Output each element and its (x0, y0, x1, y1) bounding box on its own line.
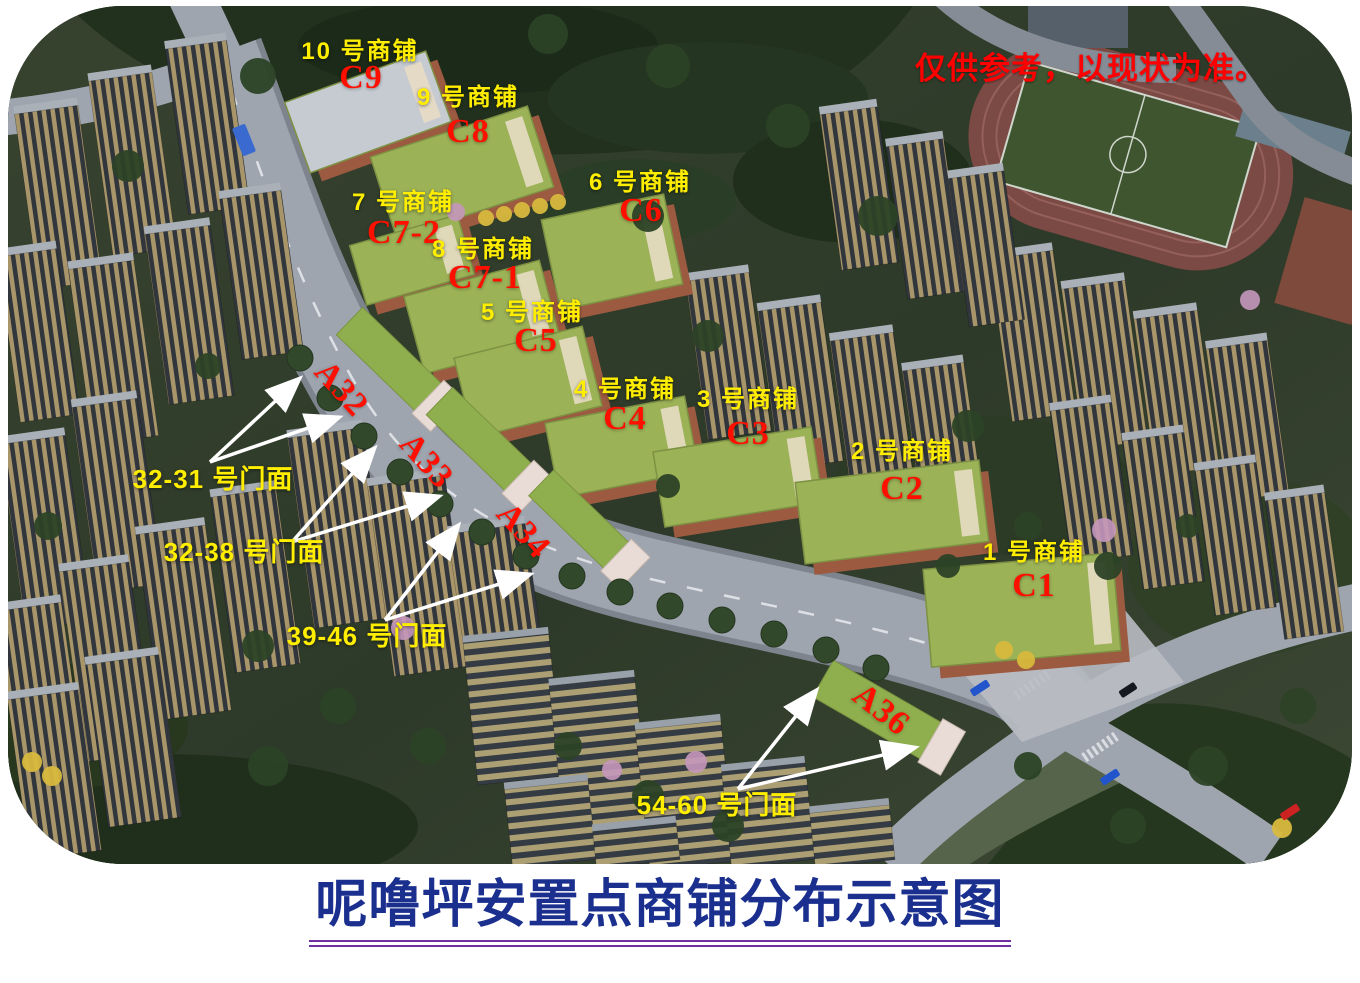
storefront-range-label: 32-31 号门面 (133, 466, 294, 492)
block-code-label: A32 (308, 355, 374, 424)
block-code-label: A33 (393, 427, 459, 496)
shop-name-label: 2 号商铺 (851, 440, 953, 464)
annotation-labels: 10 号商铺C99 号商铺C87 号商铺C7-28 号商铺C7-16 号商铺C6… (8, 6, 1352, 864)
shop-code-label: C9 (339, 61, 383, 95)
poster-page: 10 号商铺C99 号商铺C87 号商铺C7-28 号商铺C7-16 号商铺C6… (0, 0, 1360, 983)
shop-name-label: 3 号商铺 (697, 388, 799, 412)
storefront-range-label: 54-60 号门面 (637, 792, 798, 818)
shop-name-label: 7 号商铺 (352, 191, 454, 215)
shop-code-label: C7-2 (367, 216, 441, 250)
page-title: 呢噜坪安置点商铺分布示意图 (309, 876, 1010, 947)
caption: 呢噜坪安置点商铺分布示意图 (292, 876, 1028, 947)
block-code-label: A36 (846, 678, 915, 743)
shop-code-label: C3 (726, 417, 770, 451)
shop-code-label: C5 (514, 324, 558, 358)
shop-code-label: C8 (446, 115, 490, 149)
shop-code-label: C2 (880, 472, 924, 506)
shop-name-label: 1 号商铺 (983, 541, 1085, 565)
storefront-range-label: 32-38 号门面 (164, 539, 325, 565)
storefront-range-label: 39-46 号门面 (287, 623, 448, 649)
aerial-rendering-photo: 10 号商铺C99 号商铺C87 号商铺C7-28 号商铺C7-16 号商铺C6… (8, 6, 1352, 864)
shop-code-label: C1 (1012, 569, 1056, 603)
shop-code-label: C4 (603, 402, 647, 436)
shop-name-label: 4 号商铺 (574, 378, 676, 402)
shop-name-label: 9 号商铺 (417, 86, 519, 110)
shop-code-label: C7-1 (448, 261, 522, 295)
block-code-label: A34 (490, 497, 556, 566)
disclaimer-note: 仅供参考，以现状为准。 (915, 53, 1267, 86)
shop-code-label: C6 (619, 194, 663, 228)
